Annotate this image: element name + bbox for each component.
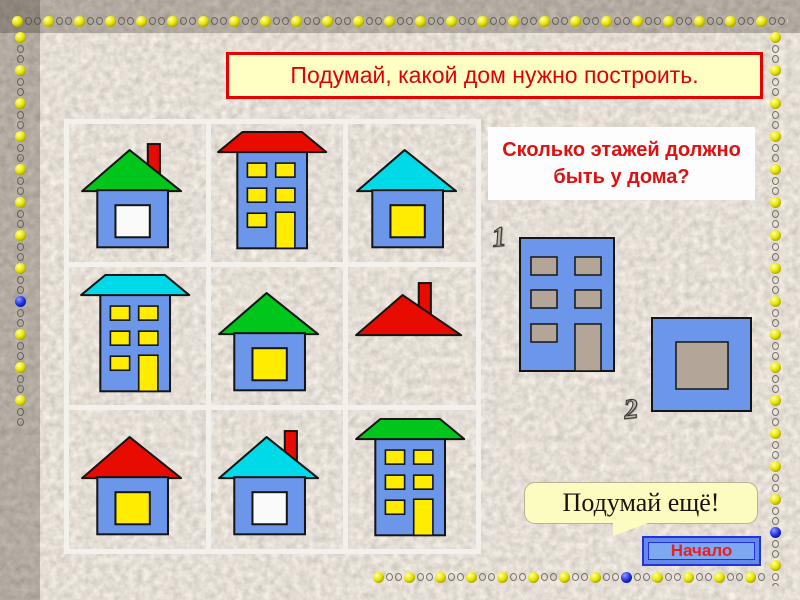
- bead-icon: [539, 16, 550, 27]
- chain-link-icon: [96, 17, 103, 25]
- bead-icon: [770, 164, 781, 175]
- bead-icon: [770, 362, 781, 373]
- chain-link-icon: [772, 276, 779, 284]
- chain-link-icon: [17, 177, 24, 185]
- bead-icon: [446, 16, 457, 27]
- bead-icon: [15, 98, 26, 109]
- chain-link-icon: [716, 17, 723, 25]
- chain-link-icon: [313, 17, 320, 25]
- chain-link-icon: [772, 111, 779, 119]
- chain-link-icon: [727, 573, 734, 581]
- bead-icon: [770, 230, 781, 241]
- bead-icon: [714, 572, 725, 583]
- bead-icon: [621, 572, 632, 583]
- chain-link-icon: [674, 573, 681, 581]
- bead-icon: [291, 16, 302, 27]
- chain-link-icon: [17, 45, 24, 53]
- chain-link-icon: [772, 45, 779, 53]
- chain-link-icon: [17, 154, 24, 162]
- chain-link-icon: [395, 573, 402, 581]
- chain-link-icon: [17, 220, 24, 228]
- chain-link-icon: [17, 418, 24, 426]
- bead-icon: [322, 16, 333, 27]
- chain-link-icon: [17, 111, 24, 119]
- bead-icon: [404, 572, 415, 583]
- chain-link-icon: [189, 17, 196, 25]
- chain-link-icon: [772, 78, 779, 86]
- title-text: Подумай, какой дом нужно построить.: [290, 62, 698, 89]
- chain-link-icon: [17, 319, 24, 327]
- chain-link-icon: [437, 17, 444, 25]
- chain-link-icon: [499, 17, 506, 25]
- chain-link-icon: [428, 17, 435, 25]
- bead-icon: [373, 572, 384, 583]
- chain-link-icon: [772, 220, 779, 228]
- option-1-multi-storey-building[interactable]: [519, 237, 615, 372]
- multi-storey-building: [519, 237, 615, 372]
- bead-border-right: [769, 32, 781, 586]
- bead-icon: [384, 16, 395, 27]
- house-tall-green-roof: [344, 411, 476, 549]
- house-roof-only-red-roof: [344, 267, 476, 405]
- bead-icon: [770, 263, 781, 274]
- chain-link-icon: [17, 253, 24, 261]
- chain-link-icon: [572, 573, 579, 581]
- chain-link-icon: [273, 17, 280, 25]
- bead-icon: [770, 65, 781, 76]
- bead-icon: [229, 16, 240, 27]
- bead-icon: [435, 572, 446, 583]
- bead-icon: [74, 16, 85, 27]
- bead-icon: [787, 16, 788, 27]
- bead-icon: [497, 572, 508, 583]
- chain-link-icon: [772, 187, 779, 195]
- bead-icon: [466, 572, 477, 583]
- bead-icon: [15, 164, 26, 175]
- bead-icon: [770, 98, 781, 109]
- bead-icon: [15, 362, 26, 373]
- title-banner: Подумай, какой дом нужно построить.: [226, 52, 763, 99]
- chain-link-icon: [530, 17, 537, 25]
- chain-link-icon: [17, 352, 24, 360]
- house-cell-3[interactable]: [344, 124, 476, 262]
- chain-link-icon: [772, 121, 779, 129]
- chain-link-icon: [17, 78, 24, 86]
- bead-icon: [15, 329, 26, 340]
- bead-icon: [694, 16, 705, 27]
- bead-icon: [632, 16, 643, 27]
- chain-link-icon: [772, 88, 779, 96]
- bead-icon: [770, 131, 781, 142]
- chain-link-icon: [676, 17, 683, 25]
- bead-icon: [353, 16, 364, 27]
- chain-link-icon: [242, 17, 249, 25]
- chain-link-icon: [366, 17, 373, 25]
- bead-icon: [770, 560, 781, 571]
- house-tall-cyan-roof: [69, 267, 201, 405]
- chain-link-icon: [344, 17, 351, 25]
- option-2-one-storey-square[interactable]: [651, 317, 752, 412]
- chain-link-icon: [772, 144, 779, 152]
- bead-icon: [15, 65, 26, 76]
- chain-link-icon: [665, 573, 672, 581]
- bead-icon: [415, 16, 426, 27]
- chain-link-icon: [426, 573, 433, 581]
- chain-link-icon: [521, 17, 528, 25]
- bead-icon: [725, 16, 736, 27]
- houses-grid: [64, 119, 481, 554]
- start-button[interactable]: Начало: [642, 536, 761, 566]
- chain-link-icon: [772, 583, 779, 586]
- chain-link-icon: [772, 573, 779, 581]
- chain-link-icon: [645, 17, 652, 25]
- bead-icon: [770, 32, 781, 43]
- bead-icon: [43, 16, 54, 27]
- chain-link-icon: [561, 17, 568, 25]
- bead-icon: [15, 263, 26, 274]
- chain-link-icon: [17, 187, 24, 195]
- chain-link-icon: [17, 385, 24, 393]
- feedback-text: Подумай ещё!: [563, 488, 720, 518]
- chain-link-icon: [459, 17, 466, 25]
- chain-link-icon: [127, 17, 134, 25]
- chain-link-icon: [772, 385, 779, 393]
- chain-link-icon: [772, 517, 779, 525]
- bubble-tail-icon: [613, 522, 651, 536]
- chain-link-icon: [772, 55, 779, 63]
- bead-icon: [15, 32, 26, 43]
- chain-link-icon: [25, 17, 32, 25]
- bead-icon: [260, 16, 271, 27]
- chain-link-icon: [643, 573, 650, 581]
- house-small-cyan-roof: [344, 124, 476, 262]
- chain-link-icon: [550, 573, 557, 581]
- bead-icon: [477, 16, 488, 27]
- chain-link-icon: [772, 154, 779, 162]
- chain-link-icon: [468, 17, 475, 25]
- chain-link-icon: [738, 17, 745, 25]
- chain-link-icon: [772, 342, 779, 350]
- chain-link-icon: [772, 540, 779, 548]
- bead-border-bottom: [373, 571, 765, 583]
- bead-icon: [105, 16, 116, 27]
- house-small-green-roof: [206, 267, 338, 405]
- chain-link-icon: [490, 17, 497, 25]
- chain-link-icon: [654, 17, 661, 25]
- chain-link-icon: [406, 17, 413, 25]
- chain-link-icon: [772, 484, 779, 492]
- chain-link-icon: [251, 17, 258, 25]
- chain-link-icon: [583, 17, 590, 25]
- house-cell-7[interactable]: [69, 411, 201, 549]
- question-text: Сколько этажей должно быть у дома?: [494, 137, 749, 191]
- bead-icon: [15, 230, 26, 241]
- house-cell-9[interactable]: [344, 411, 476, 549]
- chain-link-icon: [592, 17, 599, 25]
- chain-link-icon: [17, 375, 24, 383]
- chain-link-icon: [118, 17, 125, 25]
- bead-icon: [770, 197, 781, 208]
- grid-line: [69, 262, 476, 267]
- bead-icon: [770, 527, 781, 538]
- chain-link-icon: [17, 210, 24, 218]
- house-cell-4[interactable]: [69, 267, 201, 405]
- bead-icon: [590, 572, 601, 583]
- one-storey-square-house: [651, 317, 752, 412]
- chain-link-icon: [634, 573, 641, 581]
- chain-link-icon: [772, 352, 779, 360]
- chain-link-icon: [772, 441, 779, 449]
- bead-icon: [770, 428, 781, 439]
- chain-link-icon: [158, 17, 165, 25]
- chain-link-icon: [17, 88, 24, 96]
- chain-link-icon: [772, 474, 779, 482]
- chain-link-icon: [282, 17, 289, 25]
- chain-link-icon: [488, 573, 495, 581]
- grid-line: [69, 405, 476, 410]
- chain-link-icon: [17, 121, 24, 129]
- grid-line: [206, 124, 211, 549]
- chain-link-icon: [623, 17, 630, 25]
- bead-icon: [528, 572, 539, 583]
- chain-link-icon: [17, 243, 24, 251]
- house-cell-8[interactable]: [206, 411, 338, 549]
- house-cell-5[interactable]: [206, 267, 338, 405]
- chain-link-icon: [772, 309, 779, 317]
- bead-icon: [15, 197, 26, 208]
- chain-link-icon: [335, 17, 342, 25]
- chain-link-icon: [772, 253, 779, 261]
- chain-link-icon: [772, 243, 779, 251]
- bead-icon: [15, 296, 26, 307]
- bead-icon: [770, 296, 781, 307]
- bead-border-left: [14, 32, 26, 426]
- chain-link-icon: [56, 17, 63, 25]
- chain-link-icon: [448, 573, 455, 581]
- bead-icon: [559, 572, 570, 583]
- bead-icon: [770, 494, 781, 505]
- bead-icon: [15, 131, 26, 142]
- bead-icon: [12, 16, 23, 27]
- bead-icon: [745, 572, 756, 583]
- bead-icon: [167, 16, 178, 27]
- bead-icon: [652, 572, 663, 583]
- house-cell-6[interactable]: [344, 267, 476, 405]
- chain-link-icon: [769, 17, 776, 25]
- chain-link-icon: [772, 451, 779, 459]
- start-button-label: Начало: [671, 541, 733, 561]
- house-tall-red-roof: [206, 124, 338, 262]
- chain-link-icon: [34, 17, 41, 25]
- chain-link-icon: [17, 342, 24, 350]
- chain-link-icon: [772, 550, 779, 558]
- chain-link-icon: [510, 573, 517, 581]
- bead-icon: [136, 16, 147, 27]
- chain-link-icon: [778, 17, 785, 25]
- chain-link-icon: [758, 573, 765, 581]
- chain-link-icon: [375, 17, 382, 25]
- chain-link-icon: [581, 573, 588, 581]
- chain-link-icon: [552, 17, 559, 25]
- slide: Подумай, какой дом нужно построить. Скол…: [0, 0, 800, 600]
- chain-link-icon: [705, 573, 712, 581]
- chain-link-icon: [736, 573, 743, 581]
- chain-link-icon: [17, 408, 24, 416]
- chain-link-icon: [772, 375, 779, 383]
- question-box: Сколько этажей должно быть у дома?: [488, 127, 755, 200]
- bead-icon: [683, 572, 694, 583]
- chain-link-icon: [614, 17, 621, 25]
- chain-link-icon: [149, 17, 156, 25]
- bead-icon: [663, 16, 674, 27]
- chain-link-icon: [17, 55, 24, 63]
- bead-icon: [770, 395, 781, 406]
- chain-link-icon: [417, 573, 424, 581]
- bead-icon: [756, 16, 767, 27]
- bead-icon: [15, 395, 26, 406]
- bead-icon: [770, 461, 781, 472]
- chain-link-icon: [220, 17, 227, 25]
- chain-link-icon: [696, 573, 703, 581]
- chain-link-icon: [772, 319, 779, 327]
- chain-link-icon: [397, 17, 404, 25]
- chain-link-icon: [17, 286, 24, 294]
- chain-link-icon: [180, 17, 187, 25]
- bead-icon: [570, 16, 581, 27]
- chain-link-icon: [304, 17, 311, 25]
- house-cell-2[interactable]: [206, 124, 338, 262]
- chain-link-icon: [519, 573, 526, 581]
- chain-link-icon: [17, 144, 24, 152]
- chain-link-icon: [17, 309, 24, 317]
- chain-link-icon: [457, 573, 464, 581]
- feedback-bubble: Подумай ещё!: [524, 482, 758, 524]
- chain-link-icon: [603, 573, 610, 581]
- grid-line: [343, 124, 348, 549]
- chain-link-icon: [541, 573, 548, 581]
- chain-link-icon: [772, 177, 779, 185]
- chain-link-icon: [772, 507, 779, 515]
- chain-link-icon: [612, 573, 619, 581]
- chain-link-icon: [211, 17, 218, 25]
- chain-link-icon: [17, 276, 24, 284]
- chain-link-icon: [479, 573, 486, 581]
- bead-icon: [508, 16, 519, 27]
- chain-link-icon: [772, 286, 779, 294]
- chain-link-icon: [65, 17, 72, 25]
- chain-link-icon: [772, 210, 779, 218]
- chain-link-icon: [772, 418, 779, 426]
- house-small-red-roof: [69, 411, 201, 549]
- chain-link-icon: [685, 17, 692, 25]
- house-small-cyan-roof: [206, 411, 338, 549]
- chain-link-icon: [747, 17, 754, 25]
- chain-link-icon: [707, 17, 714, 25]
- house-small-green-roof: [69, 124, 201, 262]
- chain-link-icon: [772, 408, 779, 416]
- bead-icon: [601, 16, 612, 27]
- bead-border-top: [12, 15, 788, 27]
- bead-icon: [198, 16, 209, 27]
- chain-link-icon: [87, 17, 94, 25]
- house-cell-1[interactable]: [69, 124, 201, 262]
- chain-link-icon: [386, 573, 393, 581]
- bead-icon: [770, 329, 781, 340]
